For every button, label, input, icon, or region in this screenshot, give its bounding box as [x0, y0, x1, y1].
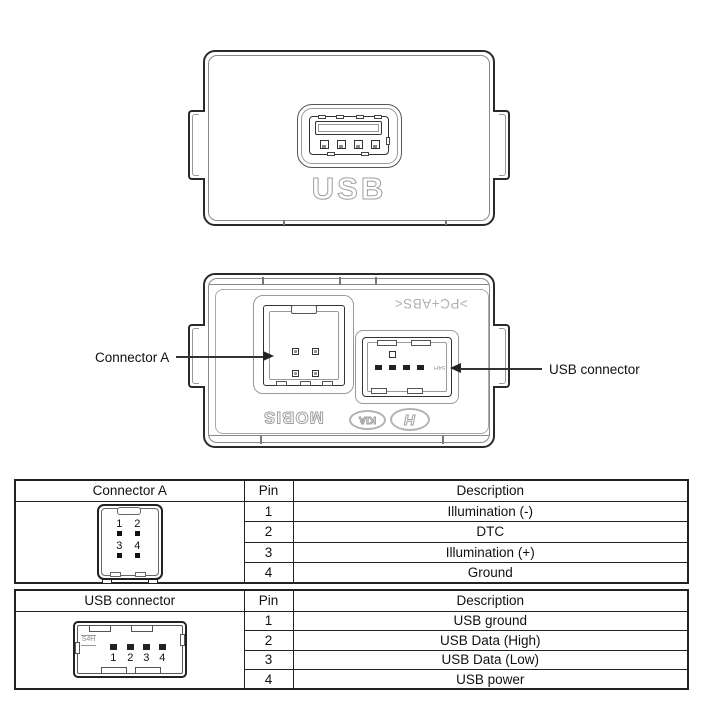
description-cell: USB ground — [293, 611, 688, 631]
shell-clip — [386, 137, 390, 145]
description-cell: USB Data (Low) — [293, 650, 688, 670]
shell-notch — [374, 115, 382, 119]
usb-socket-pin — [417, 365, 424, 370]
pin-cell: 2 — [244, 522, 293, 543]
material-marking: >PC+ABS< — [383, 296, 479, 311]
usb-connector-socket: S4H — [362, 337, 452, 397]
hyundai-logo: H — [390, 408, 430, 431]
mini-pin-number: 1 — [109, 652, 118, 664]
mini-connector-latch — [117, 507, 141, 515]
mounting-tab-right — [493, 110, 510, 180]
connector-a-latch — [291, 305, 317, 314]
usb-port-tongue — [315, 121, 382, 135]
usb-connector-callout-label: USB connector — [549, 362, 640, 377]
pin-cell: 3 — [244, 542, 293, 563]
mini-connector-side-notch — [180, 634, 185, 646]
table-header-row: USB connector Pin Description — [15, 590, 688, 611]
usb-socket-pin — [403, 365, 410, 370]
connector-a-arrowhead — [263, 351, 274, 361]
description-cell: DTC — [293, 522, 688, 543]
connector-a-pin — [292, 370, 299, 377]
description-cell: USB Data (High) — [293, 631, 688, 651]
usb-charger-diagram-page: USB — [0, 0, 701, 708]
mounting-tab-left — [188, 110, 205, 180]
connector-a-recess — [253, 295, 354, 394]
connector-a-pinout-diagram: 1 2 3 4 — [97, 504, 163, 580]
shell-notch — [318, 115, 326, 119]
kia-logo-text: KIA — [359, 415, 376, 426]
pin-column-header: Pin — [244, 480, 293, 501]
description-cell: USB power — [293, 670, 688, 690]
bottom-edge-band — [209, 435, 489, 436]
usb-connector-table-title: USB connector — [15, 590, 244, 611]
table-row: S4H 1 2 3 4 1 USB ground — [15, 611, 688, 631]
mini-pin — [110, 644, 117, 650]
connector-a-leader-line — [176, 356, 265, 358]
usb-contact — [320, 140, 329, 149]
parting-mark — [442, 436, 444, 444]
mini-pin-3: 3 — [113, 541, 126, 558]
mini-connector-notch — [131, 625, 153, 632]
mini-pin-number: 4 — [158, 652, 167, 664]
mini-pin-number: 3 — [142, 652, 151, 664]
connector-a-pin — [312, 370, 319, 377]
usb-port-bezel — [297, 104, 402, 168]
mobis-logo: MOBIS — [263, 407, 324, 427]
usb-socket-pin — [375, 365, 382, 370]
parting-mark — [262, 277, 264, 285]
pin-column-header: Pin — [244, 590, 293, 611]
mini-connector-notch — [135, 572, 146, 577]
mini-connector-side-notch — [75, 642, 80, 654]
usb-socket-notch — [377, 340, 397, 346]
description-column-header: Description — [293, 480, 688, 501]
kia-logo: KIA — [349, 410, 386, 430]
pin-cell: 3 — [244, 650, 293, 670]
connector-a-table-title: Connector A — [15, 480, 244, 501]
shell-notch — [336, 115, 344, 119]
mini-connector-notch — [89, 625, 111, 632]
parting-mark — [375, 277, 377, 285]
vendor-mark: S4H — [81, 635, 97, 645]
connector-a-socket-inner — [269, 311, 339, 380]
shell-notch — [327, 152, 335, 156]
connector-a-pin — [312, 348, 319, 355]
usb-socket-notch — [411, 340, 431, 346]
mini-connector-foot — [102, 579, 112, 584]
parting-mark — [283, 220, 285, 225]
parting-mark — [260, 436, 262, 444]
connector-a-foot — [276, 381, 287, 386]
mini-pin — [143, 644, 150, 650]
usb-socket-key — [389, 351, 396, 358]
connector-a-foot — [322, 381, 333, 386]
usb-port-tongue-inner — [318, 124, 379, 132]
mini-pin — [127, 644, 134, 650]
pin-cell: 2 — [244, 631, 293, 651]
usb-socket-pin — [389, 365, 396, 370]
usb-connector-pinout-diagram: S4H 1 2 3 4 — [73, 621, 187, 678]
mini-pin-4: 4 — [131, 541, 144, 558]
usb-contact — [371, 140, 380, 149]
shell-notch — [361, 152, 369, 156]
description-cell: Illumination (+) — [293, 542, 688, 563]
table-row: 1 2 3 4 1 Illumination (-) — [15, 501, 688, 522]
mini-connector-notch — [101, 667, 127, 674]
usb-port-shell — [309, 116, 389, 155]
mini-pin-2: 2 — [131, 519, 144, 536]
mini-connector-notch — [135, 667, 161, 674]
connector-a-pinout-diagram-cell: 1 2 3 4 — [15, 501, 244, 583]
connector-a-socket — [263, 305, 345, 386]
connector-a-pin — [292, 348, 299, 355]
mini-connector-foot — [148, 579, 158, 584]
usb-embossed-label: USB — [205, 171, 493, 207]
mini-pin-1: 1 — [113, 519, 126, 536]
parting-mark — [339, 277, 341, 285]
usb-socket-notch — [407, 388, 423, 394]
usb-connector-leader-line — [460, 368, 542, 370]
connector-a-foot — [300, 381, 311, 386]
pin-cell: 1 — [244, 501, 293, 522]
usb-connector-table: USB connector Pin Description S4H — [14, 589, 689, 690]
usb-contact — [354, 140, 363, 149]
mini-pin-number: 2 — [126, 652, 135, 664]
usb-connector-pinout-diagram-cell: S4H 1 2 3 4 — [15, 611, 244, 689]
table-header-row: Connector A Pin Description — [15, 480, 688, 501]
pin-cell: 1 — [244, 611, 293, 631]
usb-module-back-view: S4H >PC+ABS< MOBIS KIA H — [203, 273, 495, 448]
parting-mark — [445, 220, 447, 225]
pin-cell: 4 — [244, 670, 293, 690]
description-column-header: Description — [293, 590, 688, 611]
usb-socket-notch — [371, 388, 387, 394]
mini-connector-inner — [101, 508, 159, 576]
mini-pin — [159, 644, 166, 650]
mini-connector-notch — [110, 572, 121, 577]
mounting-tab-right — [493, 324, 510, 388]
hyundai-logo-letter: H — [405, 411, 416, 428]
pin-cell: 4 — [244, 563, 293, 584]
description-cell: Illumination (-) — [293, 501, 688, 522]
description-cell: Ground — [293, 563, 688, 584]
top-edge-band — [209, 284, 489, 285]
connector-a-callout-label: Connector A — [95, 350, 169, 365]
connector-a-table: Connector A Pin Description 1 2 3 4 — [14, 479, 689, 584]
usb-module-front-view: USB — [203, 50, 495, 226]
usb-connector-recess: S4H — [355, 330, 459, 404]
shell-notch — [356, 115, 364, 119]
usb-contact — [337, 140, 346, 149]
vendor-mark: S4H — [434, 364, 446, 370]
